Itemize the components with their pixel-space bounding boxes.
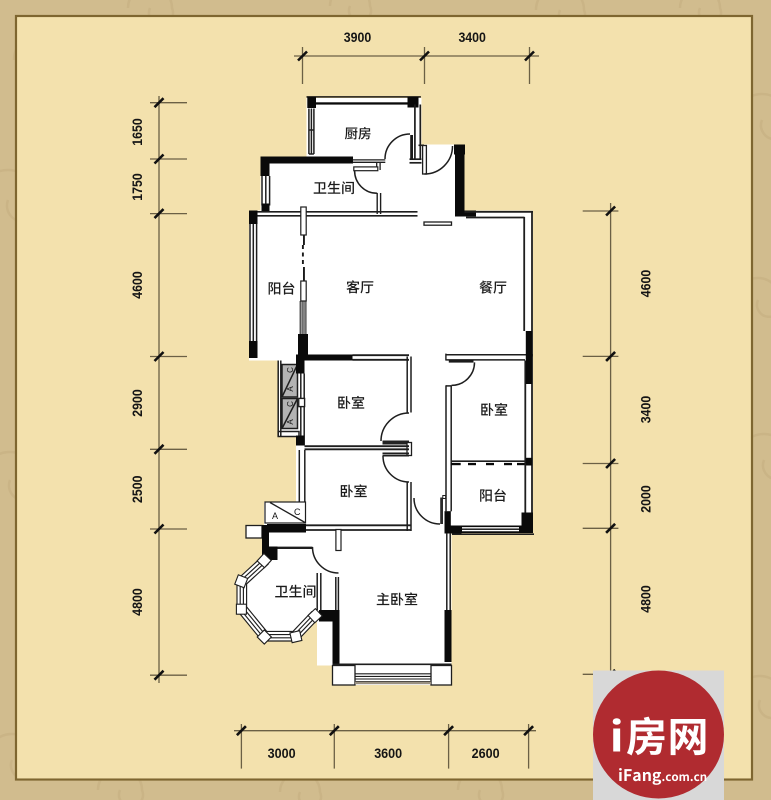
svg-text:3000: 3000 xyxy=(268,746,296,761)
svg-text:4600: 4600 xyxy=(130,271,145,299)
svg-text:4800: 4800 xyxy=(130,588,145,616)
svg-text:3400: 3400 xyxy=(458,30,486,45)
svg-text:2500: 2500 xyxy=(130,475,145,503)
svg-text:4600: 4600 xyxy=(639,270,654,298)
svg-text:A: A xyxy=(286,386,295,392)
svg-text:A: A xyxy=(272,511,278,521)
svg-text:2900: 2900 xyxy=(130,389,145,417)
svg-text:3400: 3400 xyxy=(639,396,654,424)
svg-text:1650: 1650 xyxy=(130,118,145,146)
svg-text:C: C xyxy=(294,507,301,517)
svg-text:C: C xyxy=(286,401,295,407)
svg-text:A: A xyxy=(286,419,295,425)
svg-text:3600: 3600 xyxy=(374,746,402,761)
svg-text:2000: 2000 xyxy=(639,485,654,513)
svg-text:3900: 3900 xyxy=(344,30,372,45)
svg-text:4800: 4800 xyxy=(639,585,654,613)
svg-text:2600: 2600 xyxy=(472,746,500,761)
svg-text:1750: 1750 xyxy=(130,173,145,201)
svg-text:C: C xyxy=(286,367,295,373)
